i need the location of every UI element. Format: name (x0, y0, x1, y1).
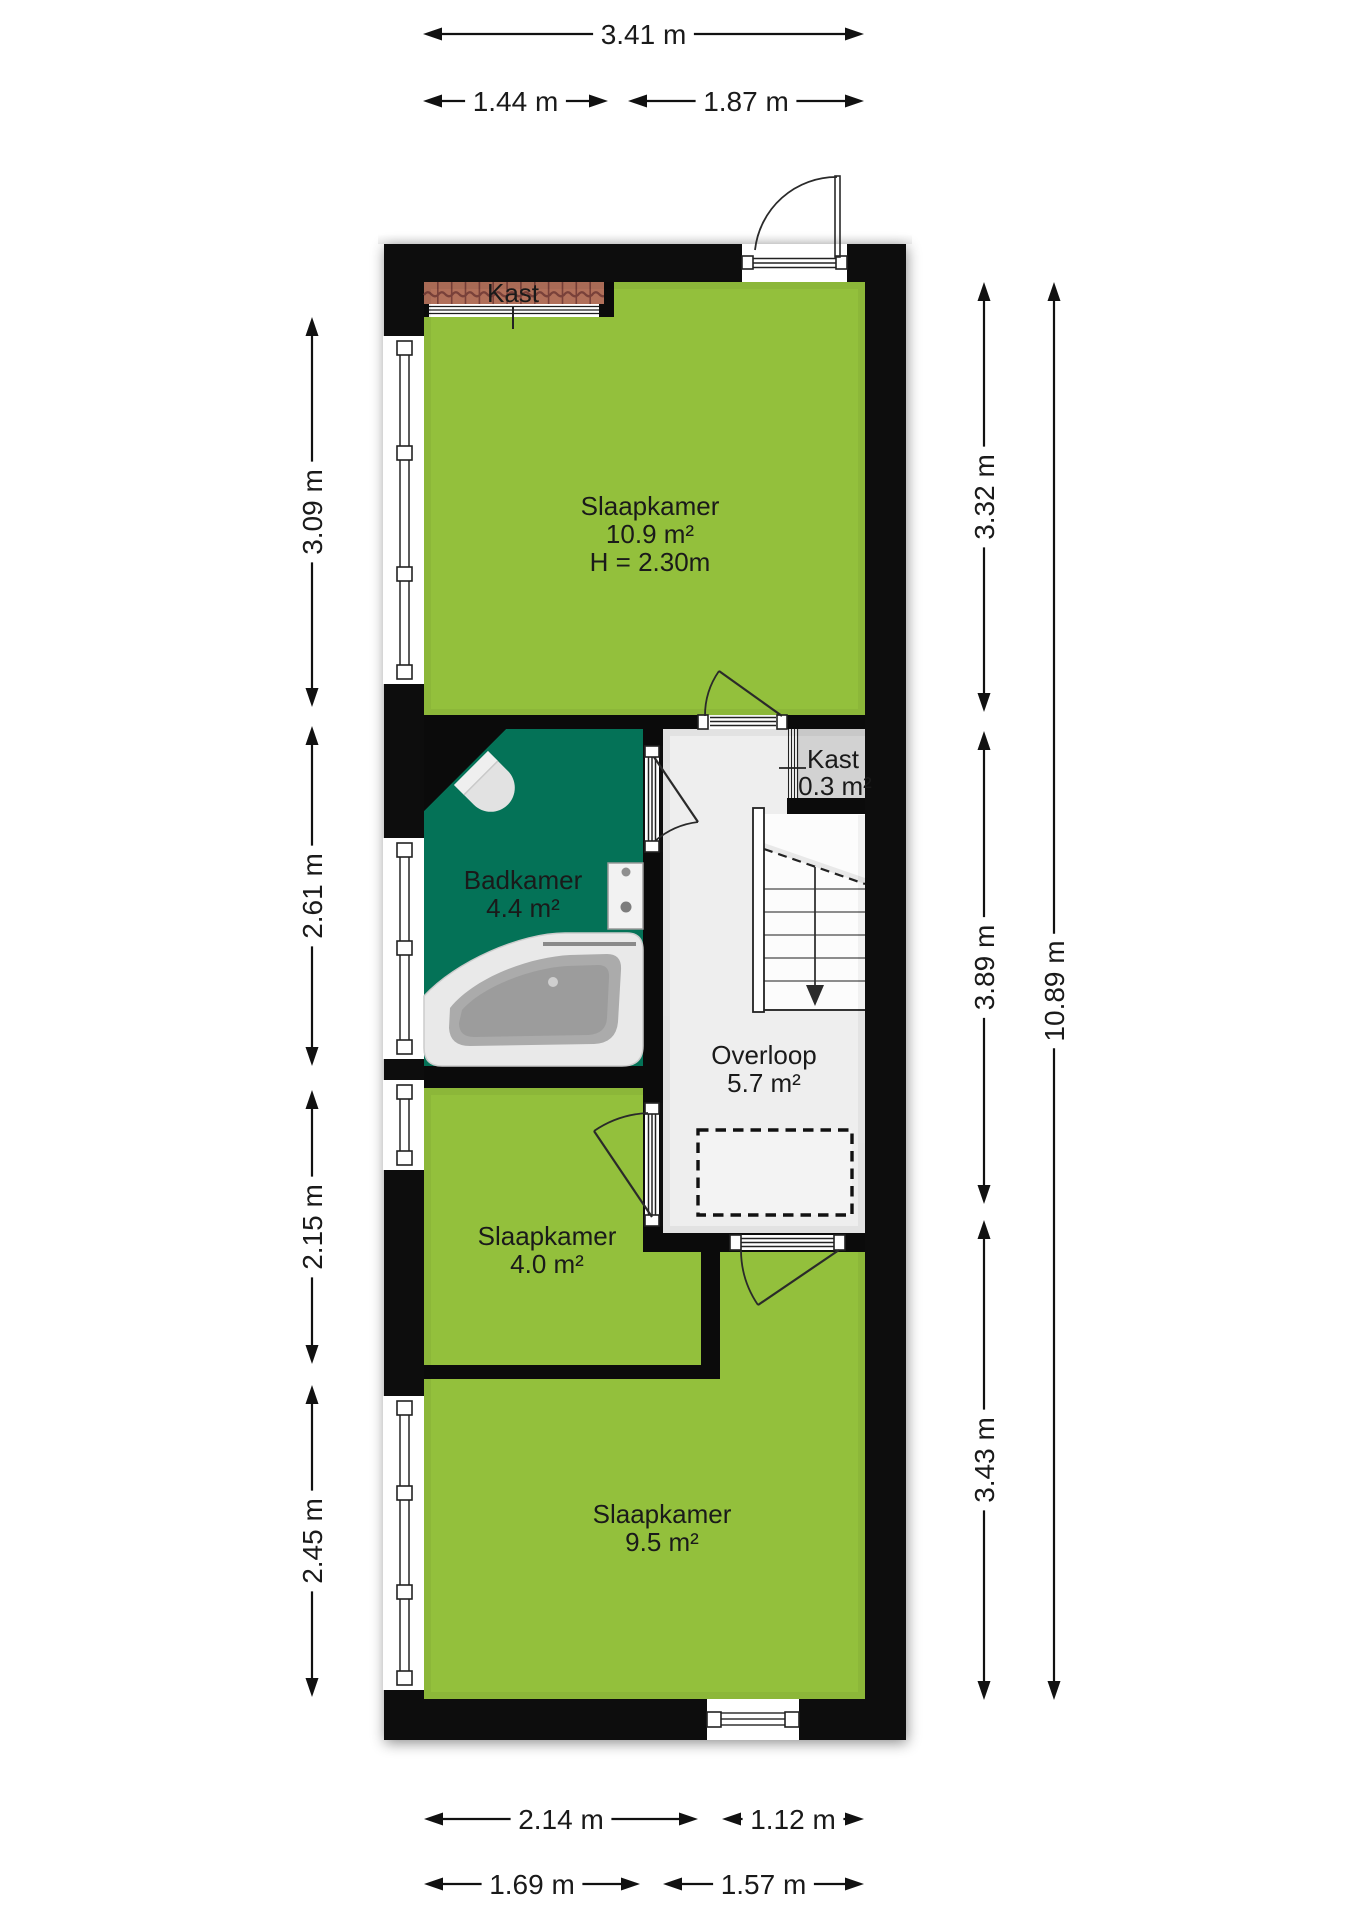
svg-text:10.89 m: 10.89 m (1039, 940, 1070, 1041)
svg-text:H = 2.30m: H = 2.30m (590, 547, 711, 577)
svg-text:3.09 m: 3.09 m (297, 469, 328, 555)
svg-text:0.3 m²: 0.3 m² (798, 771, 872, 801)
svg-text:4.4 m²: 4.4 m² (486, 893, 560, 923)
svg-text:3.43 m: 3.43 m (969, 1417, 1000, 1503)
svg-text:1.57 m: 1.57 m (721, 1869, 807, 1900)
svg-text:1.44 m: 1.44 m (473, 86, 559, 117)
svg-text:1.69 m: 1.69 m (489, 1869, 575, 1900)
svg-text:Slaapkamer: Slaapkamer (478, 1221, 617, 1251)
svg-text:1.12 m: 1.12 m (750, 1804, 836, 1835)
svg-text:Badkamer: Badkamer (464, 865, 583, 895)
svg-text:1.87 m: 1.87 m (703, 86, 789, 117)
svg-text:Slaapkamer: Slaapkamer (581, 491, 720, 521)
svg-text:3.89 m: 3.89 m (969, 925, 1000, 1011)
svg-text:2.15 m: 2.15 m (297, 1184, 328, 1270)
svg-text:5.7 m²: 5.7 m² (727, 1068, 801, 1098)
svg-text:10.9 m²: 10.9 m² (606, 519, 694, 549)
svg-text:Overloop: Overloop (711, 1040, 817, 1070)
svg-text:Kast: Kast (807, 744, 860, 774)
svg-text:4.0 m²: 4.0 m² (510, 1249, 584, 1279)
svg-text:Slaapkamer: Slaapkamer (593, 1499, 732, 1529)
svg-text:3.32 m: 3.32 m (969, 454, 1000, 540)
svg-text:2.45 m: 2.45 m (297, 1498, 328, 1584)
svg-text:2.61 m: 2.61 m (297, 853, 328, 939)
svg-text:2.14 m: 2.14 m (518, 1804, 604, 1835)
svg-text:9.5 m²: 9.5 m² (625, 1527, 699, 1557)
svg-text:3.41 m: 3.41 m (601, 19, 687, 50)
